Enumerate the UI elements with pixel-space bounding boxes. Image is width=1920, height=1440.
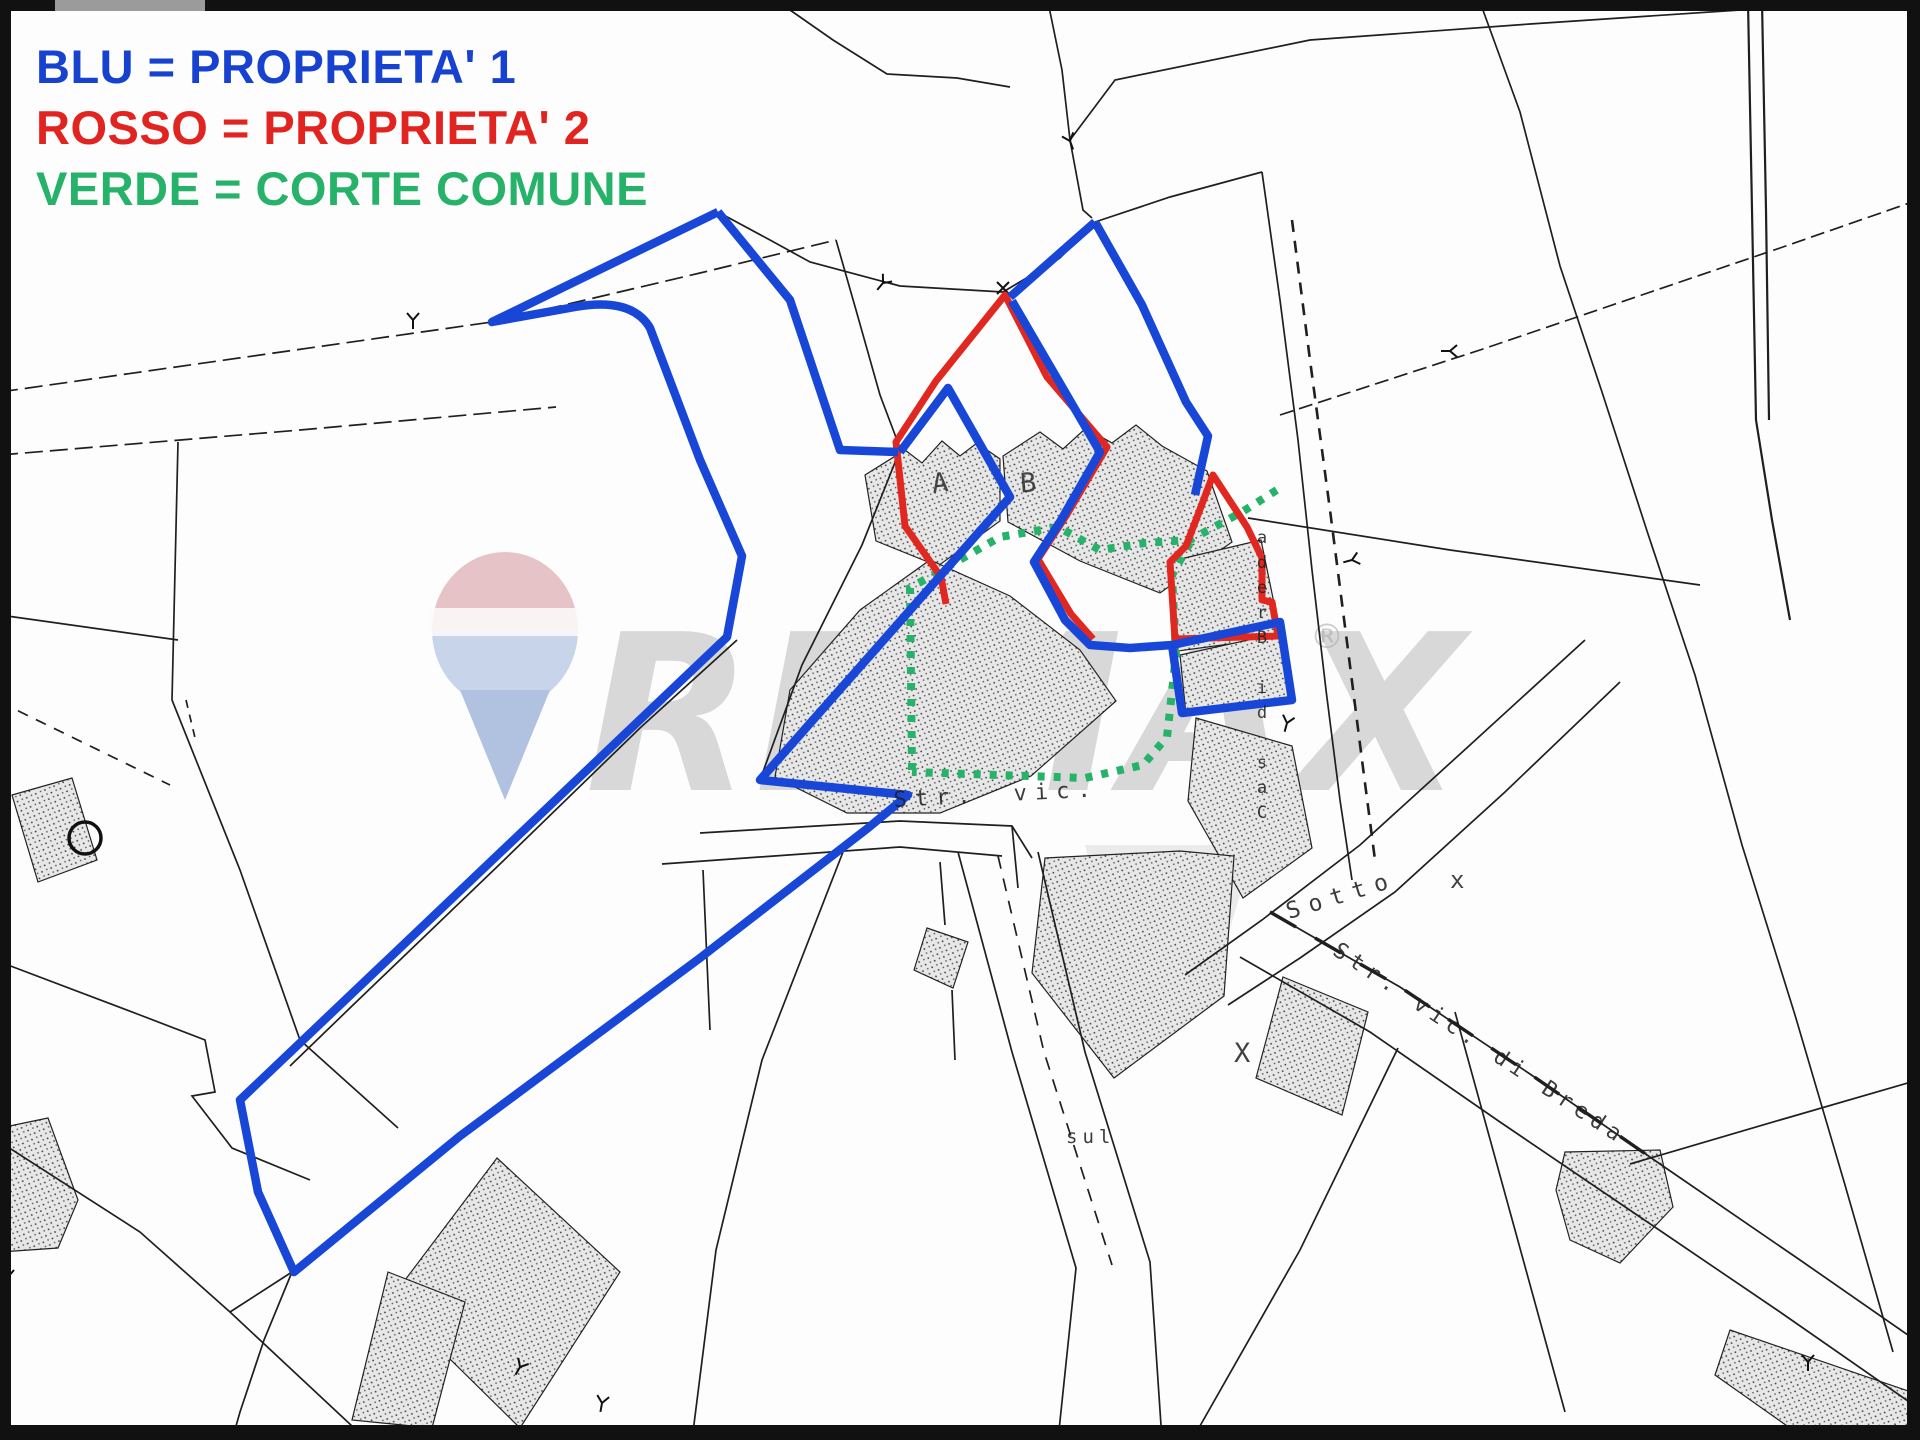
- map-frame-left: [0, 0, 11, 1440]
- building-west-1: [12, 778, 97, 882]
- legend-item-proprieta-1: BLU = PROPRIETA' 1: [36, 36, 648, 97]
- legend-item-proprieta-2: ROSSO = PROPRIETA' 2: [36, 97, 648, 158]
- surveyor-x-mark-1: x: [1450, 866, 1464, 894]
- road-label-cas-di-breda-vertical: aderB id saC: [1252, 528, 1272, 758]
- building-southeast-2: [1715, 1330, 1920, 1428]
- remax-balloon-icon: [429, 552, 581, 800]
- building-label-b: B: [1019, 467, 1037, 499]
- building-south-of-road: [1032, 851, 1234, 1078]
- map-frame-right: [1907, 0, 1920, 1440]
- legend-item-corte-comune: VERDE = CORTE COMUNE: [36, 158, 648, 219]
- building-diamond-small: [914, 928, 968, 988]
- surveyor-x-mark-2: X: [1234, 1038, 1250, 1069]
- legend: BLU = PROPRIETA' 1 ROSSO = PROPRIETA' 2 …: [36, 36, 648, 219]
- building-label-a: A: [930, 467, 949, 500]
- map-frame-gray-notch: [55, 0, 205, 11]
- building-southeast-1: [1556, 1150, 1673, 1263]
- cadastral-map-page: REMAX ®: [0, 0, 1920, 1440]
- map-frame-top: [0, 0, 1920, 11]
- road-label-sul: sul: [1066, 1126, 1115, 1148]
- building-bottom-2: [352, 1272, 465, 1428]
- map-frame-bottom: [0, 1425, 1920, 1440]
- registered-trademark-icon: ®: [1310, 617, 1344, 657]
- property1-branch-east: [718, 212, 898, 452]
